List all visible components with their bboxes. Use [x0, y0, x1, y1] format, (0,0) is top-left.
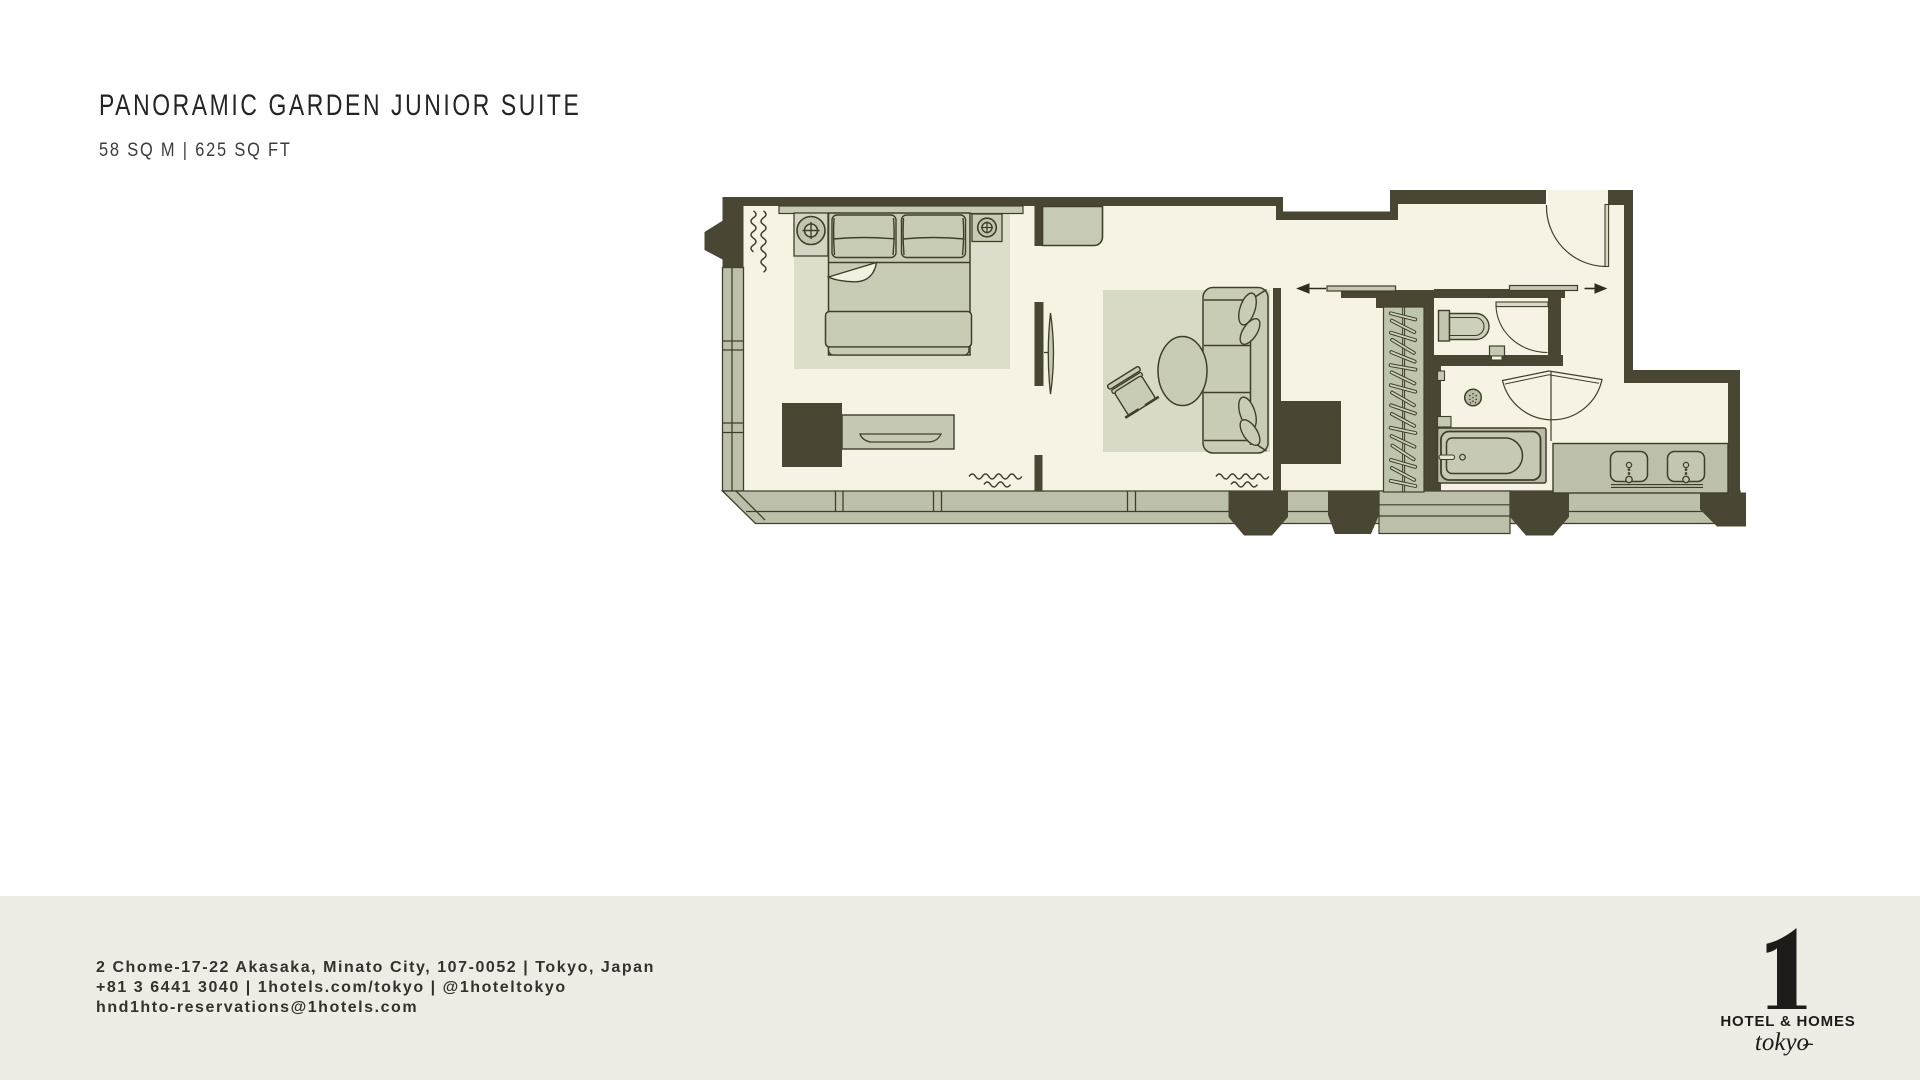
svg-text:tokyo: tokyo	[1755, 1029, 1809, 1056]
svg-text:HOTEL & HOMES: HOTEL & HOMES	[1720, 1013, 1855, 1030]
